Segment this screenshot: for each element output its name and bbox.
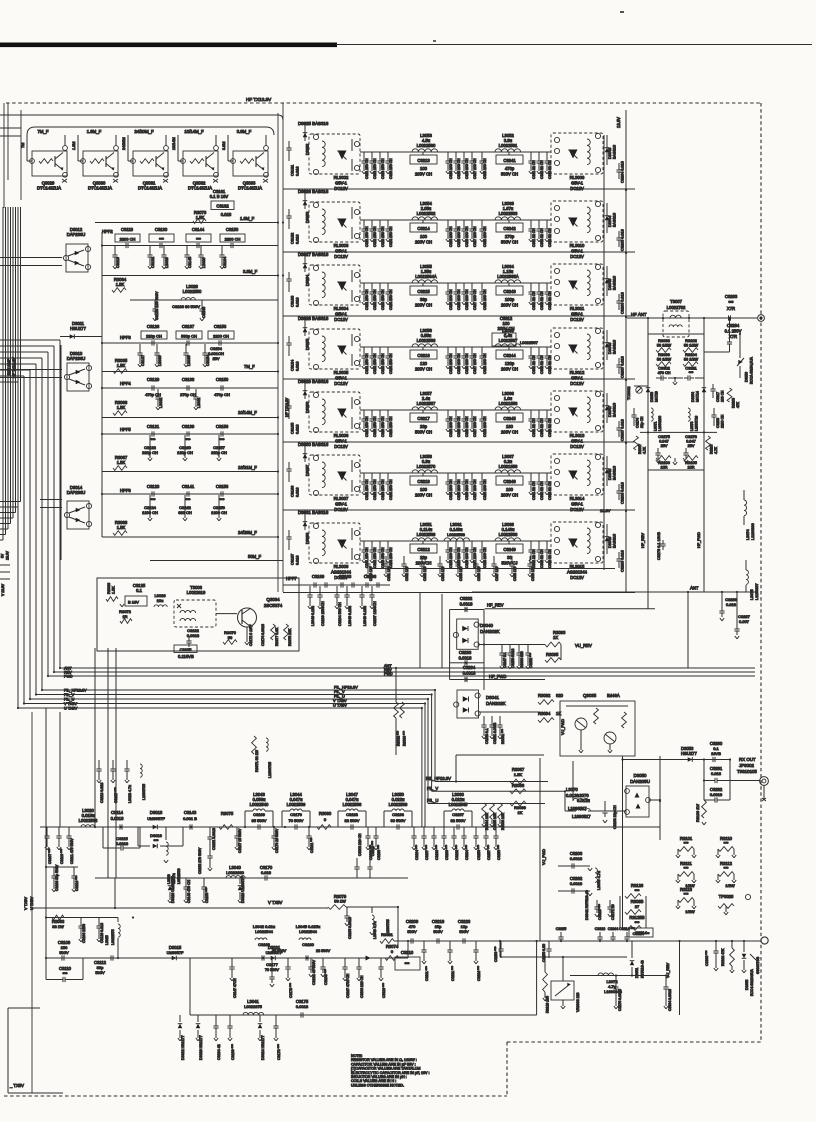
svg-text:C332 82 CH: C332 82 CH [540,549,544,568]
svg-text:C3106 2200: C3106 2200 [82,924,86,943]
svg-text:0.047: 0.047 [686,440,696,444]
svg-text:C321 150 CH: C321 150 CH [365,158,369,179]
svg-text:C3180: C3180 [302,942,315,947]
svg-text:200V CH: 200V CH [415,303,432,308]
svg-text:C3130: C3130 [155,227,168,232]
svg-text:HPF6: HPF6 [120,488,131,493]
svg-text:C3178 ***: C3178 *** [289,982,293,998]
svg-text:0.018: 0.018 [296,361,300,371]
svg-text:DAN235U: DAN235U [630,779,650,784]
svg-text:***: *** [724,866,729,871]
svg-text:L3033: L3033 [165,257,169,268]
svg-text:G5V-1: G5V-1 [335,502,348,507]
svg-text:BAS316: BAS316 [613,534,617,548]
svg-text:C324 100 CH: C324 100 CH [449,353,453,374]
svg-text:L1690735: L1690735 [142,784,146,800]
svg-text:13.8V: 13.8V [600,508,611,513]
svg-text:10/14M: 10/14M [172,137,176,150]
svg-text:1.5K: 1.5K [117,405,126,410]
svg-text:RCC4-3010A3UA: RCC4-3010A3UA [750,969,754,996]
svg-text:C3174 0.0018: C3174 0.0018 [261,624,265,646]
svg-text:200V CH: 200V CH [501,493,518,498]
svg-text:***: *** [689,371,694,375]
svg-text:R3095: R3095 [546,652,559,657]
svg-text:C3265 0.018: C3265 0.018 [621,229,625,251]
svg-text:56 1/2W: 56 1/2W [657,358,672,362]
svg-text:C3248: C3248 [503,479,516,484]
svg-text:C328 100 CH: C328 100 CH [483,353,487,374]
svg-text:G5V-1: G5V-1 [571,181,584,186]
svg-text:L3075: L3075 [750,589,754,600]
svg-text:C3304 0.0018: C3304 0.0018 [668,989,672,1011]
svg-text:HF_FWD: HF_FWD [697,532,701,548]
svg-text:D3025 BAS316: D3025 BAS316 [298,121,329,126]
svg-text:C3172 8 16V: C3172 8 16V [249,625,253,646]
svg-text:RL3014: RL3014 [570,496,585,501]
svg-text:R3102: R3102 [685,338,698,343]
svg-text:***: *** [151,497,156,502]
svg-text:C328 100 CH: C328 100 CH [483,158,487,179]
svg-text:470p: 470p [505,166,515,171]
svg-text:***: *** [159,237,164,242]
svg-text:500V CH: 500V CH [501,172,518,177]
svg-text:D3047: D3047 [608,406,612,417]
svg-text:C331 82 CH: C331 82 CH [532,549,536,568]
svg-text:C322 150 CH: C322 150 CH [373,289,377,310]
svg-text:***: *** [220,497,225,502]
svg-text:C324 100 CH: C324 100 CH [449,547,453,568]
svg-text:1.8M: 1.8M [72,142,76,150]
svg-text:R3081: R3081 [381,932,394,937]
svg-text:C324 150 CH: C324 150 CH [389,416,393,437]
svg-text:RL3005: RL3005 [334,370,349,375]
svg-text:C3194 560 CH: C3194 560 CH [338,602,342,626]
svg-text:V TX5V: V TX5V [268,900,283,905]
svg-text:1.5K: 1.5K [117,525,126,530]
svg-text:RL3004: RL3004 [334,306,349,311]
svg-text:***: *** [196,237,201,242]
svg-text:L0022550: L0022550 [183,289,202,294]
svg-text:C323 150 CH: C323 150 CH [381,158,385,179]
svg-text:25V: 25V [688,444,695,448]
svg-text:10u: 10u [157,598,164,603]
svg-text:C3155 ***: C3155 *** [205,887,209,903]
svg-text:D3056: D3056 [745,372,749,382]
svg-text:L0022563: L0022563 [499,211,518,216]
svg-text:VU_FWD: VU_FWD [561,719,565,735]
svg-text:G5V-1: G5V-1 [335,439,348,444]
svg-text:DTC143ZUA: DTC143ZUA [188,186,212,191]
svg-text:C3141: C3141 [182,484,195,489]
svg-text:0.0018: 0.0018 [570,881,583,886]
svg-text:60 500V: 60 500V [391,818,406,823]
svg-text:47K: 47K [736,401,740,408]
svg-text:L0022567: L0022567 [499,338,518,343]
svg-text:C3247 0.1: C3247 0.1 [503,652,507,668]
svg-text:1.5K: 1.5K [514,772,523,777]
svg-text:C324 150 CH: C324 150 CH [389,289,393,310]
svg-text:D3024 HS1277: D3024 HS1277 [261,1035,265,1060]
svg-text:270p: 270p [505,234,515,239]
svg-text:L3049 0.18u: L3049 0.18u [363,606,367,626]
svg-text:IM46A: IM46A [607,693,620,698]
svg-text:C3315 ***: C3315 *** [598,904,602,920]
svg-text:R3105: R3105 [685,460,698,465]
svg-text:560p CH: 560p CH [181,334,197,339]
svg-text:D3050: D3050 [634,773,647,778]
svg-text:D3026 BAS316: D3026 BAS316 [298,189,329,194]
svg-text:G5V-1: G5V-1 [571,439,584,444]
svg-text:1R: 1R [122,614,127,619]
svg-text:C3250 0.018: C3250 0.018 [511,648,515,668]
svg-text:L0022566: L0022566 [417,338,436,343]
svg-text:C325 100 CH: C325 100 CH [457,353,461,374]
svg-text:D3029 BAS316: D3029 BAS316 [298,379,329,384]
svg-text:C332 82 CH: C332 82 CH [540,481,544,500]
svg-text:***: *** [186,497,191,502]
svg-text:C3196: C3196 [364,574,377,579]
svg-text:C3193: C3193 [339,574,352,579]
svg-text:L0022565A: L0022565A [497,274,519,279]
svg-text:HF_REV: HF_REV [641,533,645,548]
svg-text:D3027 BAS316: D3027 BAS316 [298,252,329,257]
svg-text:C3202 ***: C3202 *** [455,844,459,860]
svg-text:2200 CH: 2200 CH [721,414,725,428]
svg-text:R3098: R3098 [658,338,671,343]
svg-text:DC12V: DC12V [334,254,348,259]
svg-text:R3083 ***: R3083 *** [403,730,407,746]
svg-text:C3198 ***: C3198 *** [435,844,439,860]
svg-text:C3150: C3150 [216,377,229,382]
svg-text:L0022566: L0022566 [499,532,518,537]
svg-text:C3314 ***: C3314 *** [633,932,650,936]
svg-text:D3023 UM9957F: D3023 UM9957F [241,876,245,903]
svg-text:***: *** [635,920,640,925]
svg-text:56: 56 [228,635,233,640]
svg-text:TC3002: TC3002 [627,386,631,400]
svg-text:C323 150 CH: C323 150 CH [381,353,385,374]
svg-text:C324 150 CH: C324 150 CH [389,353,393,374]
svg-text:35 500V: 35 500V [252,818,267,823]
svg-text:56 1/2W: 56 1/2W [684,344,699,348]
svg-text:R3104: R3104 [685,352,698,357]
svg-text:C3126: C3126 [147,324,160,329]
svg-text:G900079G: G900079G [756,957,760,974]
svg-text:C321 150 CH: C321 150 CH [365,479,369,500]
svg-text:10/14M_F: 10/14M_F [184,129,204,134]
svg-text:C3204 ***: C3204 *** [465,844,469,860]
svg-text:C3233: C3233 [459,650,472,655]
svg-text:C3269 0.018: C3269 0.018 [621,550,625,572]
svg-text:C3224 ***: C3224 *** [477,965,481,981]
svg-text:C331 82 CH: C331 82 CH [532,481,536,500]
svg-text:D3046: D3046 [608,343,612,354]
svg-text:C325 100 CH: C325 100 CH [457,416,461,437]
svg-text:220p CH: 220p CH [146,334,162,339]
svg-text:C332 82 CH: C332 82 CH [540,228,544,247]
svg-text:25V: 25V [212,356,219,361]
svg-text:L1690517: L1690517 [568,806,587,811]
svg-text:BAS316: BAS316 [613,466,617,480]
svg-text:C3244: C3244 [503,353,516,358]
svg-text:D3053: D3053 [650,392,654,402]
svg-text:28 500V: 28 500V [316,949,331,953]
svg-text:0.018: 0.018 [261,870,272,875]
svg-text:500V: 500V [433,929,443,934]
svg-text:D3040: D3040 [480,623,493,628]
svg-text:C3278: C3278 [685,434,698,439]
svg-text:2200 CH: 2200 CH [213,334,229,339]
svg-text:C3258 ***: C3258 *** [497,844,501,860]
svg-text:82 500V: 82 500V [451,818,466,823]
svg-text:56 1W: 56 1W [334,899,346,904]
svg-text:C3242: C3242 [503,226,516,231]
svg-text:L0021858: L0021858 [499,464,518,469]
svg-text:C3129: C3129 [147,377,160,382]
svg-text:L0022539: L0022539 [177,868,181,884]
svg-text:T3007: T3007 [670,299,683,304]
svg-text:1/2W: 1/2W [725,883,735,888]
svg-text:C3319 ***: C3319 *** [382,982,386,998]
svg-text:C3268 0.018: C3268 0.018 [621,482,625,504]
svg-text:L0022562: L0022562 [417,211,436,216]
svg-text:1.5K: 1.5K [117,363,126,368]
svg-text:C3307 0.018: C3307 0.018 [621,419,625,441]
svg-text:DC12V: DC12V [570,254,584,259]
svg-text:C322 150 CH: C322 150 CH [373,353,377,374]
svg-text:1.8M_F: 1.8M_F [240,216,255,221]
svg-text:R3097: R3097 [638,444,642,454]
svg-text:D3048: D3048 [608,469,612,480]
svg-text:C3252 ***: C3252 *** [529,652,533,668]
svg-text:C331 82 CH: C331 82 CH [532,228,536,247]
svg-text:L3031: L3031 [197,397,201,408]
svg-text:C3257 ***: C3257 *** [487,844,491,860]
svg-text:G5V-1: G5V-1 [571,249,584,254]
svg-text:C324 150 CH: C324 150 CH [389,226,393,247]
svg-text:D3045: D3045 [608,279,612,290]
svg-text:ANT: ANT [690,586,699,591]
svg-text:R3102 47K: R3102 47K [721,948,725,966]
svg-text:C324 150 CH: C324 150 CH [389,547,393,568]
svg-text:500V: 500V [59,950,69,955]
svg-text:D3015: D3015 [169,945,182,950]
svg-text:0.0018: 0.0018 [460,602,473,607]
svg-text:***: *** [724,841,729,846]
svg-text:D3030 BAS316: D3030 BAS316 [298,442,329,447]
svg-text:MA714: MA714 [696,391,700,402]
svg-text:0.018: 0.018 [296,234,300,244]
svg-text:C327 100 CH: C327 100 CH [473,353,477,374]
svg-text:C332 82 CH: C332 82 CH [540,160,544,179]
svg-text:0.018: 0.018 [296,297,300,307]
svg-text:C3311: C3311 [685,366,697,371]
svg-text:C325 100 CH: C325 100 CH [457,289,461,310]
svg-text:0.0018: 0.0018 [459,656,472,661]
svg-text:C3212: C3212 [417,547,430,552]
svg-text:D3028 BAS316: D3028 BAS316 [298,316,329,321]
svg-text:C325 100 CH: C325 100 CH [457,158,461,179]
svg-text:C326 100 CH: C326 100 CH [465,158,469,179]
svg-text:C3215: C3215 [417,289,430,294]
svg-text:DTC143ZUA: DTC143ZUA [88,186,112,191]
svg-text:C322 150 CH: C322 150 CH [373,158,377,179]
svg-text:C322 150 CH: C322 150 CH [373,479,377,500]
svg-text:HPF3: HPF3 [120,335,131,340]
svg-text:RL3010: RL3010 [570,243,585,248]
svg-text:C3144: C3144 [192,227,205,232]
svg-text:***: *** [154,838,159,843]
svg-text:0.018: 0.018 [711,771,722,776]
svg-text:BAS316: BAS316 [613,276,617,290]
svg-text:L0022619: L0022619 [187,590,206,595]
svg-text:C3139: C3139 [182,424,195,429]
svg-text:0.0018: 0.0018 [116,841,129,846]
svg-text:C3267 0.018: C3267 0.018 [621,356,625,378]
svg-text:7M_F: 7M_F [244,364,255,369]
svg-text:13.8V: 13.8V [6,550,10,560]
svg-text:C3250 ***: C3250 *** [494,946,498,962]
svg-text:C3198 ***: C3198 *** [324,969,328,985]
svg-text:RCCA-30104,3UA: RCCA-30104,3UA [750,356,754,384]
svg-text:L0021856: L0021856 [499,401,518,406]
svg-text:1.5K: 1.5K [117,460,126,465]
svg-text:C3154: C3154 [206,355,210,366]
svg-text:RL3013: RL3013 [570,433,585,438]
svg-text:D3018: D3018 [150,810,163,815]
svg-text:RL3011: RL3011 [570,306,585,311]
svg-text:R3109 1W: R3109 1W [696,804,700,822]
svg-text:***: *** [684,841,689,846]
svg-text:G5V-1: G5V-1 [335,249,348,254]
svg-text:C3200 ***: C3200 *** [445,844,449,860]
svg-text:C325 100 CH: C325 100 CH [457,226,461,247]
svg-text:L3073: L3073 [690,421,694,431]
svg-text:_ TX5V: _ TX5V [9,1083,24,1088]
svg-text:200VCH: 200VCH [416,561,432,566]
svg-text:RL3012: RL3012 [570,370,585,375]
svg-text:L1690517: L1690517 [572,814,591,819]
svg-text:C3213: C3213 [417,158,430,163]
svg-text:4.7K: 4.7K [643,446,647,454]
svg-text:1.5K: 1.5K [116,282,125,287]
svg-text:X7R: X7R [729,334,737,339]
svg-text:2200 CH: 2200 CH [225,237,241,242]
svg-text:B 16V: B 16V [128,600,139,605]
svg-text:UM9957F: UM9957F [147,816,165,821]
svg-text:***: *** [405,961,410,966]
svg-text:C3152 270 500V: C3152 270 500V [198,847,202,874]
svg-text:C3135: C3135 [180,647,193,652]
svg-text:C332 82 CH: C332 82 CH [540,418,544,437]
svg-text:C3108 35p 500V: C3108 35p 500V [55,864,59,891]
svg-text:C325 100 CH: C325 100 CH [457,479,461,500]
svg-text:R3120 100: R3120 100 [546,996,550,1013]
svg-text:G5V-1: G5V-1 [571,502,584,507]
svg-text:C3111 470 500V: C3111 470 500V [70,838,74,864]
svg-text:FIL_U: FIL_U [427,798,438,803]
svg-text:C3190 1500CH: C3190 1500CH [321,601,325,626]
svg-text:DTC143ZUA: DTC143ZUA [238,186,262,191]
svg-text:C3153: C3153 [226,227,239,232]
svg-text:DC12V: DC12V [570,444,584,449]
svg-text:D3031 BAS316: D3031 BAS316 [298,510,329,515]
svg-text:C3107 ***: C3107 *** [48,848,52,864]
svg-text:C3182: C3182 [291,233,295,244]
svg-text:VU_REV: VU_REV [575,643,592,648]
svg-text:0.0018: 0.0018 [111,816,124,821]
svg-text:27: 27 [635,904,640,909]
svg-text:DC12V: DC12V [570,381,584,386]
svg-text:MA729: MA729 [655,391,659,402]
svg-text:C322 150 CH: C322 150 CH [373,226,377,247]
svg-text:200V CH: 200V CH [501,367,518,372]
svg-text:0.018: 0.018 [296,487,300,497]
svg-text:R3077 6.0K: R3077 6.0K [275,627,279,646]
svg-text:C3147 47CH: C3147 47CH [233,978,237,998]
svg-text:C3179: C3179 [290,812,303,817]
svg-text:C3138: C3138 [182,377,195,382]
svg-text:R9075: R9075 [221,811,234,816]
svg-text:RX OUT: RX OUT [739,757,756,762]
svg-text:D3020 UM9957F: D3020 UM9957F [171,876,175,903]
svg-text:D3044: D3044 [608,216,612,227]
svg-text:L0022544: L0022544 [255,929,274,934]
svg-text:C326 100 CH: C326 100 CH [465,547,469,568]
svg-text:23p: 23p [420,424,428,429]
svg-text:C3314 ***: C3314 *** [619,927,635,931]
svg-text:D3043: D3043 [608,148,612,159]
svg-text:200V CH: 200V CH [501,430,518,435]
svg-text:D3042 R9751S-40: D3042 R9751S-40 [585,890,589,920]
svg-text:0.018: 0.018 [296,424,300,434]
svg-text:C3164: C3164 [223,257,227,268]
svg-text:C321 150 CH: C321 150 CH [365,226,369,247]
svg-text:C324 100 CH: C324 100 CH [449,226,453,247]
svg-text:38 500V: 38 500V [272,949,287,953]
svg-text:7M: 7M [21,143,25,148]
svg-text:0.0018: 0.0018 [463,671,476,676]
svg-text:***: *** [729,300,734,305]
svg-text:L3030: L3030 [158,355,162,366]
svg-text:D3054: D3054 [691,392,695,402]
svg-text:C3160 ***: C3160 *** [231,1044,235,1060]
svg-text:0.018: 0.018 [296,555,300,565]
svg-text:D3049: D3049 [608,537,612,548]
svg-text:L3048 0.18u: L3048 0.18u [348,606,352,626]
svg-text:RL3003: RL3003 [334,243,349,248]
svg-text:C3218: C3218 [417,479,430,484]
svg-text:C324 150 CH: C324 150 CH [389,158,393,179]
svg-text:TP3028: TP3028 [719,894,734,899]
svg-text:C323 150 CH: C323 150 CH [381,289,385,310]
svg-text:L1690236: L1690236 [658,416,662,431]
svg-text:24/20M_F: 24/20M_F [134,129,154,134]
svg-text:C3158: C3158 [216,484,229,489]
svg-text:100p: 100p [505,297,515,302]
svg-text:***: *** [635,888,640,893]
svg-text:BAS316: BAS316 [613,340,617,354]
svg-text:L3031: L3031 [159,397,163,408]
svg-text:HPF4: HPF4 [120,381,131,386]
svg-text:C3251 0.0018: C3251 0.0018 [493,723,497,744]
svg-text:R3080: R3080 [319,811,332,816]
svg-text:HF_REV: HF_REV [487,603,504,608]
svg-text:70 500V: 70 500V [289,818,304,823]
svg-text:0.1 B 16V: 0.1 B 16V [210,194,229,199]
svg-text:470p CH: 470p CH [214,392,230,397]
svg-text:UM9957F: UM9957F [167,951,184,955]
